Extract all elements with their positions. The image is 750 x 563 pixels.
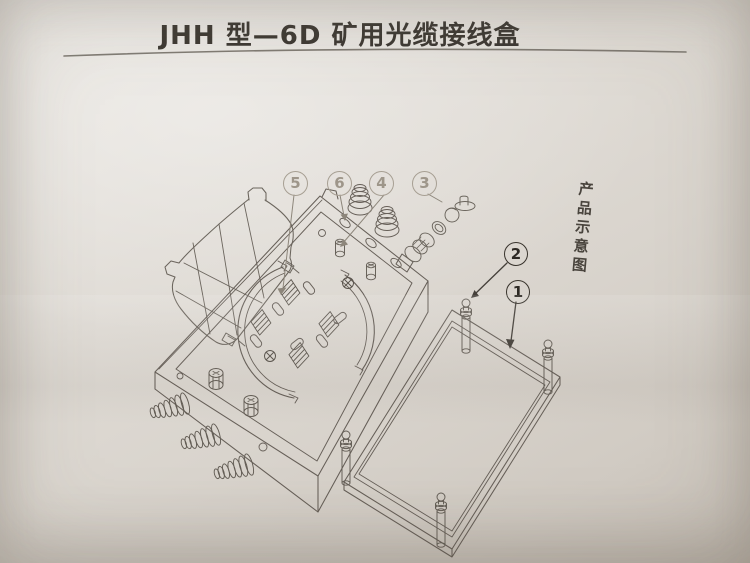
base-plate	[344, 310, 560, 557]
document-photo: JHH 型—6D 矿用光缆接线盒	[0, 0, 750, 563]
callout-number: 4	[376, 176, 386, 191]
callout-badge-1: 1	[506, 280, 530, 304]
callout-number: 5	[290, 176, 300, 191]
callout-number: 2	[511, 247, 521, 262]
callout-number: 6	[334, 176, 344, 191]
callout-badge-5: 5	[283, 171, 308, 196]
corner-posts	[341, 299, 554, 547]
exploded-diagram	[0, 0, 750, 563]
leader-lines-faint	[278, 194, 443, 295]
callout-badge-2: 2	[504, 242, 528, 266]
title-underline	[64, 49, 686, 56]
arrowhead-4	[340, 239, 348, 247]
deck-standoffs	[209, 239, 376, 416]
flange-holes	[338, 217, 403, 270]
cover-lid	[165, 188, 299, 346]
cable-glands	[148, 392, 256, 485]
callout-number: 3	[419, 176, 429, 191]
callout-number: 1	[513, 285, 523, 300]
callout-badge-4: 4	[369, 171, 394, 196]
tray-screws	[265, 278, 354, 362]
callout-badge-3: 3	[412, 171, 437, 196]
callout-badge-6: 6	[327, 171, 352, 196]
gland-exploded-parts	[402, 196, 475, 265]
